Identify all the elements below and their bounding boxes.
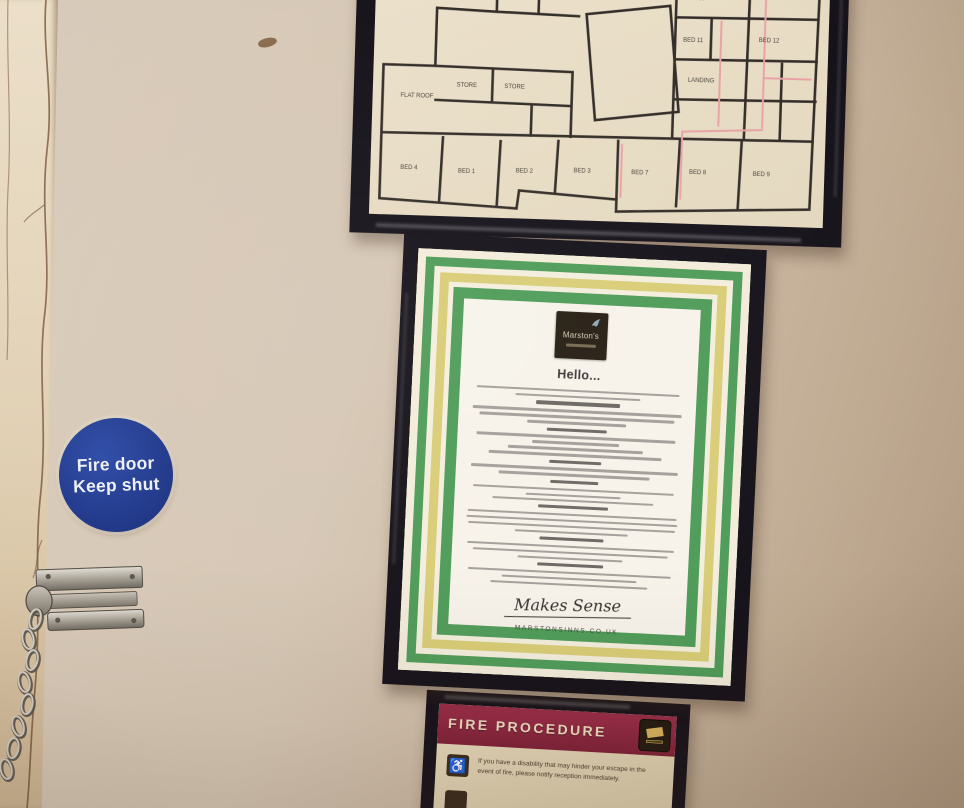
logo-wordmark: Marston's <box>555 330 607 342</box>
frame-glare <box>834 0 844 197</box>
room-label: LANDING <box>688 78 715 85</box>
security-chain <box>0 608 44 781</box>
notice-icon-2 <box>444 790 467 808</box>
room-label: STORE <box>504 84 525 91</box>
logo-tagline <box>565 343 595 347</box>
marstons-badge-icon <box>639 720 671 752</box>
fire-procedure-header: FIRE PROCEDURE <box>437 703 677 756</box>
letter-signature: Makes Sense <box>504 595 631 619</box>
room-label: BED 4 <box>400 165 418 172</box>
floor-plan-svg: FLAT ROOF BED 5 BED 6 STORE STORE BED 4 … <box>369 0 831 228</box>
wall-chip-mark <box>257 36 278 49</box>
sign-line-2: Keep shut <box>73 473 160 497</box>
room-label: BED 10 <box>684 0 705 2</box>
room-label: BED 12 <box>759 38 780 45</box>
room-label: BED 9 <box>753 172 771 179</box>
room-label: BED 2 <box>516 168 534 175</box>
room-label: BED 11 <box>683 38 704 45</box>
room-label: BED 1 <box>458 169 476 176</box>
letter-website: MARSTONSINNS.CO.UK <box>458 621 675 639</box>
marstons-logo: Marston's <box>554 311 608 360</box>
fire-door-keep-shut-sign: Fire door Keep shut <box>57 416 175 534</box>
disability-notice-text: If you have a disability that may hinder… <box>477 757 656 787</box>
room-label: BED 8 <box>689 170 707 177</box>
fire-door-photo: FLAT ROOF BED 5 BED 6 STORE STORE BED 4 … <box>0 0 964 808</box>
room-label: FLAT ROOF <box>400 93 433 100</box>
fire-procedure-title: FIRE PROCEDURE <box>448 715 607 740</box>
sign-line-1: Fire door <box>76 453 154 476</box>
room-label: BED 7 <box>631 170 649 177</box>
fire-procedure-frame: FIRE PROCEDURE ♿ If you have a disabilit… <box>417 690 690 808</box>
door-chain-latch <box>0 558 170 808</box>
floor-plan-frame: FLAT ROOF BED 5 BED 6 STORE STORE BED 4 … <box>349 0 850 248</box>
room-label: BED 3 <box>573 168 591 175</box>
letter-greeting: Hello... <box>470 363 687 388</box>
bird-icon <box>589 317 602 330</box>
striped-mat: Marston's Hello... <box>398 248 751 686</box>
floor-plan-drawing: FLAT ROOF BED 5 BED 6 STORE STORE BED 4 … <box>369 0 831 228</box>
fire-procedure-notice: FIRE PROCEDURE ♿ If you have a disabilit… <box>431 703 677 808</box>
room-label: STORE <box>457 82 478 89</box>
welcome-letter: Marston's Hello... <box>448 298 701 635</box>
welcome-letter-frame: Marston's Hello... <box>382 232 767 701</box>
wheelchair-icon: ♿ <box>446 754 469 777</box>
